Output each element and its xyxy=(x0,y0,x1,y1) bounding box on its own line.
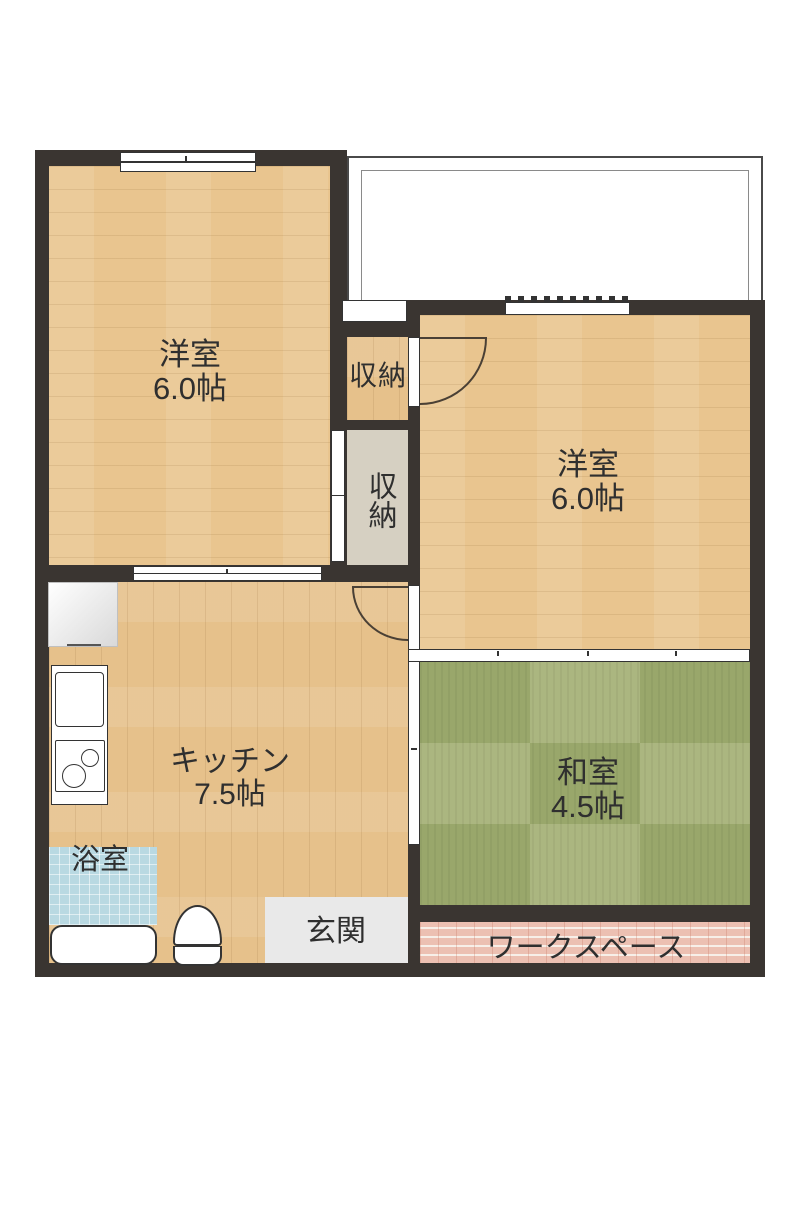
japanese-room-name: 和室 xyxy=(488,756,688,790)
vertical-slide-tick xyxy=(411,748,417,750)
slide-tick-2 xyxy=(587,651,589,656)
wall-closet-divider xyxy=(347,420,408,430)
western-right-size: 6.0帖 xyxy=(488,482,688,516)
storage-bottom-name: 収納 xyxy=(364,471,396,529)
toilet-bowl xyxy=(173,905,222,946)
bathroom-name: 浴室 xyxy=(71,844,129,876)
wall-right-outer xyxy=(750,300,765,977)
kitchen-sink xyxy=(55,672,104,727)
door-leaf-kitchen xyxy=(352,586,408,588)
sliding-door-leftroom-kitchen xyxy=(133,566,322,581)
window-sash-tick xyxy=(185,156,187,163)
kitchen-stove xyxy=(55,740,105,792)
label-kitchen: キッチン 7.5帖 xyxy=(130,745,330,811)
entrance-name: 玄関 xyxy=(306,915,366,948)
window-sash-line xyxy=(121,161,255,163)
kitchen-name: キッチン xyxy=(130,745,330,778)
storage-top-name: 収納 xyxy=(343,361,413,392)
label-storage-bottom: 収納 xyxy=(361,460,395,540)
bathtub xyxy=(50,925,157,965)
wall-washitsu-bottom xyxy=(408,905,765,922)
floorplan-canvas: 洋室 6.0帖 収納 収納 洋室 6.0帖 キッチン 7.5帖 和室 4.5帖 … xyxy=(0,0,800,1232)
toilet xyxy=(173,905,222,966)
balcony-step xyxy=(342,300,407,322)
label-japanese-room: 和室 4.5帖 xyxy=(488,756,688,824)
label-entrance: 玄関 xyxy=(266,915,406,948)
wall-bottom-outer xyxy=(35,963,765,977)
refrigerator-base-line xyxy=(67,644,101,646)
kitchen-size: 7.5帖 xyxy=(130,778,330,811)
wall-left-outer xyxy=(35,150,49,977)
toilet-tank xyxy=(173,946,222,966)
wall-kitchen-right-lower xyxy=(408,845,420,963)
label-storage-top: 収納 xyxy=(343,361,413,392)
closet-door-mid-line xyxy=(332,495,344,496)
western-right-name: 洋室 xyxy=(488,448,688,482)
balcony-inner-line xyxy=(361,170,749,300)
sliding-door-kitchen-washitsu xyxy=(408,585,420,845)
stove-burner-small xyxy=(81,749,99,767)
japanese-room-size: 4.5帖 xyxy=(488,790,688,824)
window-top-left-room xyxy=(120,152,256,172)
door-leaf-rightroom xyxy=(420,337,487,339)
slide-tick-1 xyxy=(497,651,499,656)
workspace-name: ワークスペース xyxy=(487,932,686,964)
refrigerator xyxy=(48,582,118,647)
label-western-room-left: 洋室 6.0帖 xyxy=(90,338,290,406)
sliding-door-rightroom-washitsu xyxy=(408,649,750,662)
sliding-door-closet-bottom xyxy=(331,430,345,562)
western-left-size: 6.0帖 xyxy=(90,372,290,406)
sliding-door-tick xyxy=(226,569,228,574)
western-left-name: 洋室 xyxy=(90,338,290,372)
balcony xyxy=(347,156,763,302)
slide-tick-3 xyxy=(675,651,677,656)
sliding-door-mid-line xyxy=(134,573,321,574)
label-bathroom: 浴室 xyxy=(50,845,150,877)
wall-closet-right xyxy=(408,407,420,585)
window-rightroom xyxy=(505,302,630,315)
stove-burner-large xyxy=(62,764,86,788)
label-western-room-right: 洋室 6.0帖 xyxy=(488,448,688,516)
label-workspace: ワークスペース xyxy=(436,933,736,965)
